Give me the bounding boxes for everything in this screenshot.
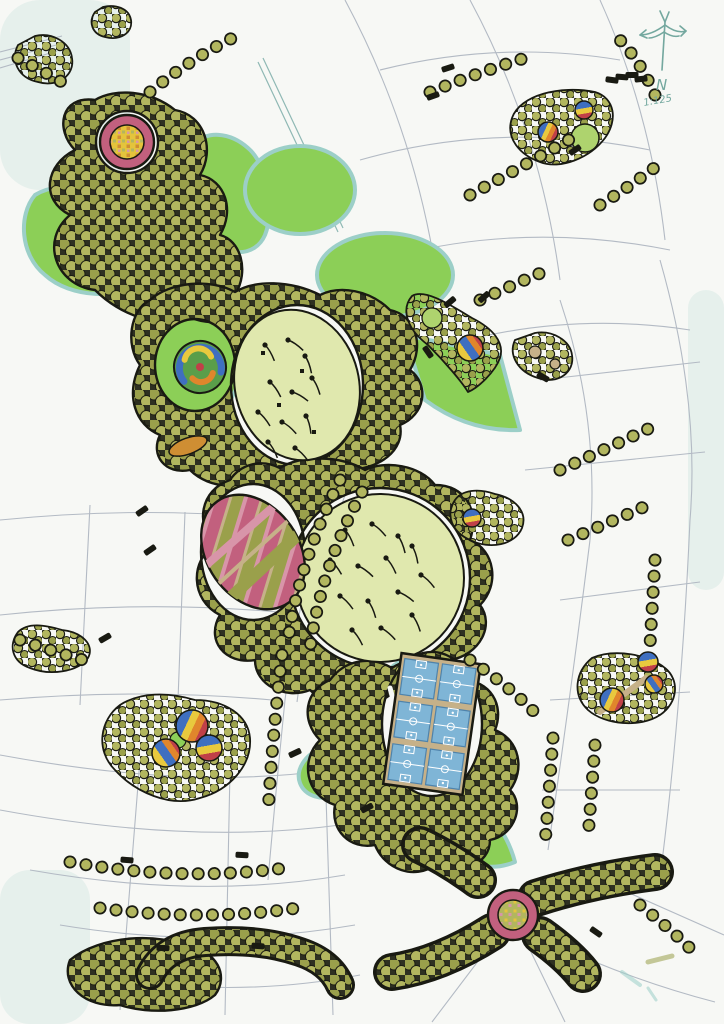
canopy-bright-upper [245, 146, 355, 234]
north-arrow: N 1:125 [640, 11, 686, 109]
scanned-masterplan-page: N 1:125 [0, 0, 724, 1024]
scale-label: 1:125 [643, 93, 673, 109]
pocket-park-northeast [510, 90, 613, 165]
plaza-northwest [100, 115, 154, 169]
masterplan-drawing: N 1:125 [0, 0, 724, 1024]
plaza-south [488, 890, 538, 940]
pocket-park-playground-southwest [102, 695, 250, 802]
north-label: N [656, 76, 667, 94]
pocket-park-top-edge [92, 6, 132, 38]
pocket-park-east-small [513, 332, 573, 379]
pocket-park-playground-east [577, 652, 675, 723]
stray-marks [622, 956, 672, 1000]
sports-courts [383, 653, 481, 795]
